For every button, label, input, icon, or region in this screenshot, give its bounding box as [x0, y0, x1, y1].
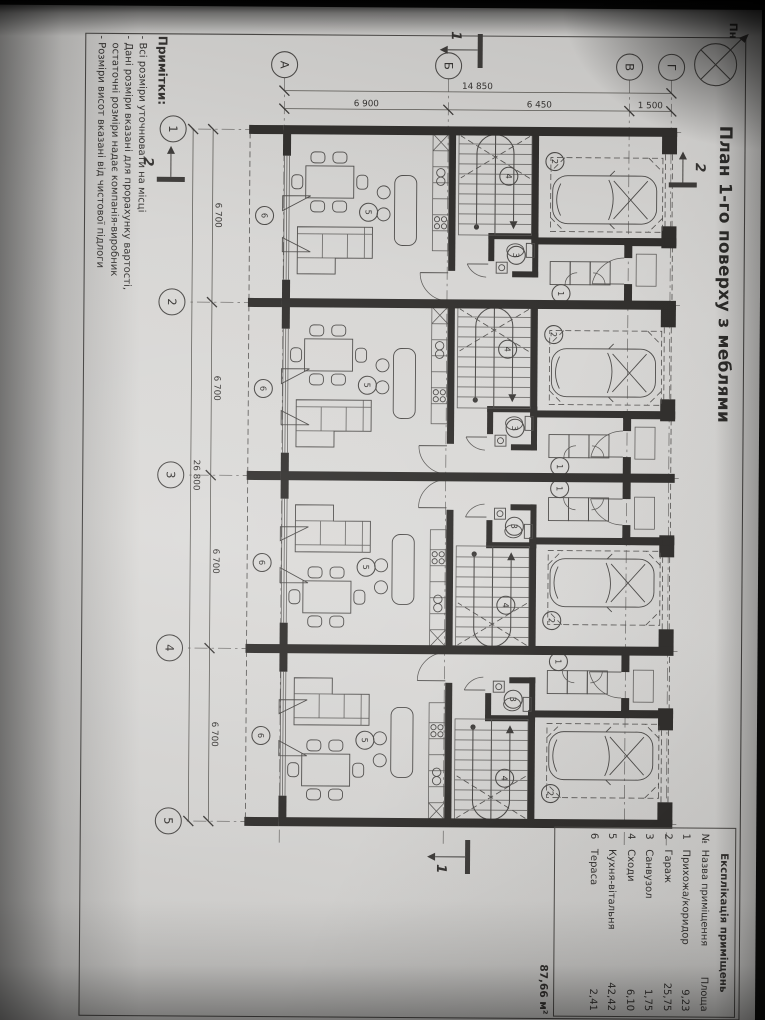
- axis-letter-b: Б: [442, 62, 456, 70]
- axis-letter-a: А: [278, 61, 292, 69]
- svg-text:3: 3: [510, 426, 520, 431]
- dim-unit-4: 6 700: [209, 722, 219, 748]
- dim-unit-2: 6 700: [211, 376, 221, 402]
- svg-text:4: 4: [501, 603, 511, 608]
- col-area: Площа: [694, 974, 713, 1012]
- drawing-sheet: 14 850 1 500 6 450 6 900 6 700 6 700 6 7…: [0, 5, 762, 1020]
- axis-letter-g: Г: [665, 64, 679, 71]
- notes-block: Примітки: - Всі розміри уточнювати на мі…: [92, 35, 170, 396]
- note-line: - Всі розміри уточнювати на місці: [133, 36, 149, 396]
- unit-plan-1: [249, 129, 677, 305]
- col-no: №: [695, 834, 714, 850]
- dim-total-width: 26 800: [191, 460, 201, 491]
- section-2-label-top: 2: [692, 163, 708, 173]
- section-1-label-right: 1: [433, 864, 449, 874]
- svg-text:6: 6: [256, 733, 266, 738]
- svg-text:1: 1: [555, 464, 565, 469]
- svg-text:6: 6: [260, 213, 270, 218]
- dim-seg-vg: 1 500: [638, 101, 664, 111]
- svg-text:2: 2: [546, 791, 556, 796]
- explication-total: 87,66 м²: [537, 826, 550, 1016]
- svg-text:2: 2: [547, 618, 557, 623]
- north-icon: Пн: [694, 23, 748, 86]
- svg-text:5: 5: [360, 738, 370, 743]
- note-line: - Розміри висот вказані від чистової під…: [92, 35, 108, 395]
- svg-text:3: 3: [511, 253, 521, 258]
- svg-text:1: 1: [555, 486, 565, 491]
- dim-unit-3: 6 700: [210, 549, 220, 575]
- svg-text:5: 5: [362, 383, 372, 388]
- svg-text:5: 5: [361, 565, 371, 570]
- section-marks: 1 1 2 2: [135, 29, 709, 876]
- svg-text:2: 2: [550, 159, 560, 164]
- dim-seg-bv: 6 450: [527, 100, 553, 110]
- notes-heading: Примітки:: [153, 36, 170, 396]
- svg-text:6: 6: [257, 560, 267, 565]
- dimension-lines-depth: 14 850 1 500 6 450 6 900: [279, 81, 676, 117]
- table-row: 5Кухня-вітальня42,42: [601, 833, 621, 1011]
- north-label: Пн: [727, 23, 739, 39]
- table-row: 6Тераса2,41: [583, 833, 603, 1011]
- page-title: План 1-го поверху з меблями: [713, 126, 735, 424]
- table-row: 1Прихожа/коридор9,23: [675, 833, 695, 1011]
- explication-header: № Назва приміщення Площа: [694, 834, 714, 1012]
- svg-text:3: 3: [509, 524, 519, 529]
- svg-text:1: 1: [556, 291, 566, 296]
- table-row: 4Сходи6,10: [620, 833, 640, 1011]
- svg-text:4: 4: [503, 347, 513, 352]
- table-row: 3Санвузол1,75: [638, 833, 658, 1011]
- photo-of-floor-plan: 14 850 1 500 6 450 6 900 6 700 6 700 6 7…: [0, 0, 765, 1020]
- dim-unit-1: 6 700: [212, 203, 222, 229]
- section-1-label-left: 1: [448, 31, 464, 41]
- col-name: Назва приміщення: [694, 850, 713, 974]
- dim-seg-ab: 6 900: [354, 99, 380, 109]
- axis-bubbles: Г В Б А 1 2 3 4 5: [155, 51, 684, 838]
- svg-text:3: 3: [508, 697, 518, 702]
- unit-plan-2: [248, 302, 676, 478]
- note-line: - Дані розміри вказані для прорахунку ва…: [119, 36, 135, 396]
- note-line: остаточні розміри надає компанія-виробни…: [106, 35, 122, 395]
- svg-text:1: 1: [553, 659, 563, 664]
- dim-total-depth: 14 850: [462, 82, 493, 92]
- svg-text:6: 6: [258, 386, 268, 391]
- svg-text:4: 4: [500, 776, 510, 781]
- svg-text:5: 5: [364, 210, 374, 215]
- axis-number-5: 5: [161, 817, 175, 824]
- axis-number-3: 3: [164, 471, 178, 478]
- svg-text:2: 2: [549, 332, 559, 337]
- party-walls: [244, 125, 677, 829]
- unit-plan-3: [247, 475, 675, 651]
- axis-letter-v: В: [623, 63, 637, 71]
- unit-plan-4: [245, 648, 673, 824]
- explication-title: Експлікація приміщень: [717, 834, 730, 1012]
- explication-table: Експлікація приміщень № Назва приміщення…: [553, 827, 736, 1018]
- svg-text:4: 4: [504, 174, 514, 179]
- axis-number-4: 4: [163, 644, 177, 651]
- table-row: 2Гараж25,75: [657, 833, 677, 1011]
